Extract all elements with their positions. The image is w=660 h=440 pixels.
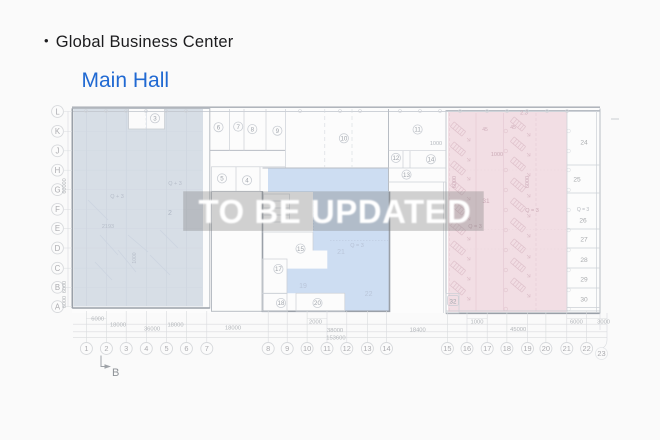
svg-text:1: 1 bbox=[84, 344, 88, 353]
svg-text:K: K bbox=[55, 127, 61, 136]
svg-text:J: J bbox=[56, 147, 60, 156]
svg-text:F: F bbox=[55, 205, 60, 214]
svg-text:Q = 3: Q = 3 bbox=[525, 208, 539, 214]
svg-text:D: D bbox=[55, 244, 61, 253]
svg-text:45000: 45000 bbox=[510, 327, 526, 333]
svg-text:5: 5 bbox=[220, 176, 224, 183]
svg-text:18000: 18000 bbox=[167, 323, 183, 329]
svg-text:6000: 6000 bbox=[525, 176, 531, 188]
svg-text:27: 27 bbox=[580, 236, 588, 243]
svg-text:15: 15 bbox=[297, 246, 304, 253]
svg-text:11: 11 bbox=[414, 127, 421, 134]
svg-text:6000: 6000 bbox=[62, 296, 68, 308]
svg-text:21: 21 bbox=[563, 344, 571, 353]
svg-text:16: 16 bbox=[463, 344, 471, 353]
svg-text:19: 19 bbox=[299, 283, 307, 290]
svg-text:Q = 3: Q = 3 bbox=[577, 207, 590, 213]
svg-text:26: 26 bbox=[579, 217, 587, 224]
svg-text:2193: 2193 bbox=[102, 224, 114, 230]
svg-text:TO BE UPDATED: TO BE UPDATED bbox=[199, 193, 472, 230]
svg-text:6000: 6000 bbox=[62, 281, 68, 293]
svg-text:25: 25 bbox=[573, 176, 581, 183]
svg-text:17: 17 bbox=[483, 344, 491, 353]
svg-text:22: 22 bbox=[582, 344, 590, 353]
svg-text:28: 28 bbox=[580, 257, 588, 264]
svg-text:15: 15 bbox=[443, 344, 451, 353]
svg-text:10: 10 bbox=[340, 136, 347, 143]
svg-text:19: 19 bbox=[523, 344, 531, 353]
svg-text:45: 45 bbox=[482, 127, 488, 133]
svg-text:4: 4 bbox=[144, 344, 148, 353]
svg-text:12: 12 bbox=[392, 155, 399, 162]
svg-text:6000: 6000 bbox=[570, 319, 583, 325]
svg-text:7: 7 bbox=[236, 124, 240, 131]
svg-text:18000: 18000 bbox=[110, 323, 126, 329]
svg-text:2000: 2000 bbox=[309, 319, 322, 325]
svg-text:6000: 6000 bbox=[452, 176, 458, 188]
svg-text:2.3: 2.3 bbox=[520, 111, 528, 117]
svg-text:1000: 1000 bbox=[132, 252, 138, 263]
svg-text:G: G bbox=[54, 185, 60, 194]
svg-text:L: L bbox=[55, 107, 60, 116]
svg-text:9: 9 bbox=[276, 128, 280, 135]
svg-text:24: 24 bbox=[580, 139, 588, 146]
svg-text:7: 7 bbox=[205, 344, 209, 353]
svg-text:2: 2 bbox=[104, 344, 108, 353]
svg-text:21: 21 bbox=[337, 249, 345, 256]
svg-text:45: 45 bbox=[510, 125, 516, 131]
svg-text:18: 18 bbox=[503, 344, 511, 353]
svg-text:18: 18 bbox=[278, 300, 285, 307]
svg-text:38000: 38000 bbox=[327, 328, 343, 334]
svg-text:8: 8 bbox=[266, 344, 270, 353]
svg-text:1000: 1000 bbox=[471, 319, 484, 325]
svg-text:5: 5 bbox=[164, 344, 168, 353]
svg-text:10: 10 bbox=[303, 344, 311, 353]
svg-text:23: 23 bbox=[597, 349, 605, 358]
svg-text:Q + 3: Q + 3 bbox=[168, 181, 182, 187]
svg-text:C: C bbox=[55, 264, 61, 273]
svg-text:11: 11 bbox=[323, 344, 331, 353]
svg-text:8: 8 bbox=[251, 126, 255, 133]
svg-text:20: 20 bbox=[542, 344, 550, 353]
svg-text:3: 3 bbox=[153, 116, 157, 123]
svg-text:3000: 3000 bbox=[597, 319, 610, 325]
svg-text:E: E bbox=[55, 224, 60, 233]
svg-text:12: 12 bbox=[343, 344, 351, 353]
svg-text:60000: 60000 bbox=[62, 178, 68, 193]
svg-text:6: 6 bbox=[184, 344, 188, 353]
svg-text:14: 14 bbox=[427, 156, 434, 163]
svg-text:6: 6 bbox=[217, 124, 221, 131]
svg-text:18400: 18400 bbox=[410, 328, 426, 334]
svg-text:Q + 3: Q + 3 bbox=[110, 194, 124, 200]
svg-text:13: 13 bbox=[363, 344, 371, 353]
svg-text:3: 3 bbox=[124, 344, 128, 353]
svg-text:Q = 3: Q = 3 bbox=[350, 243, 364, 249]
svg-text:B: B bbox=[112, 367, 119, 379]
svg-text:13: 13 bbox=[403, 172, 410, 179]
svg-text:4: 4 bbox=[245, 178, 249, 185]
svg-text:20: 20 bbox=[314, 300, 321, 307]
svg-text:17: 17 bbox=[275, 266, 282, 273]
svg-text:9: 9 bbox=[285, 344, 289, 353]
svg-text:1000: 1000 bbox=[430, 141, 442, 147]
svg-text:14: 14 bbox=[382, 344, 390, 353]
svg-text:29: 29 bbox=[580, 276, 588, 283]
svg-text:153600: 153600 bbox=[326, 336, 345, 342]
svg-text:B: B bbox=[55, 283, 60, 292]
svg-text:1000: 1000 bbox=[491, 152, 503, 158]
svg-text:36000: 36000 bbox=[144, 327, 160, 333]
svg-text:18000: 18000 bbox=[225, 326, 241, 332]
svg-text:6000: 6000 bbox=[91, 316, 104, 322]
svg-text:A: A bbox=[55, 302, 61, 311]
svg-text:30: 30 bbox=[580, 296, 588, 303]
svg-text:2: 2 bbox=[168, 210, 172, 217]
svg-text:H: H bbox=[55, 166, 61, 175]
svg-text:32: 32 bbox=[450, 298, 457, 305]
svg-text:22: 22 bbox=[365, 291, 373, 298]
